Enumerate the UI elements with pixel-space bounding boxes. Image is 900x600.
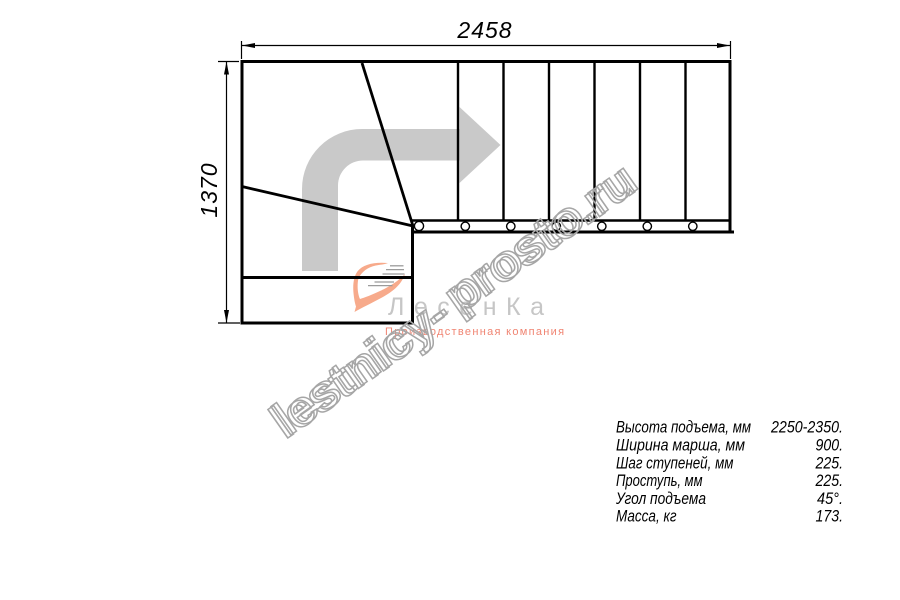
svg-text:225.: 225. [815, 471, 843, 490]
svg-text:Шаг ступеней, мм: Шаг ступеней, мм [616, 453, 734, 472]
svg-text:2250-2350.: 2250-2350. [770, 418, 843, 437]
svg-text:1370: 1370 [196, 162, 222, 217]
svg-text:Проступь, мм: Проступь, мм [616, 471, 703, 490]
svg-text:Угол подъема: Угол подъема [615, 489, 706, 508]
svg-text:225.: 225. [815, 453, 843, 472]
svg-text:2458: 2458 [456, 17, 512, 43]
svg-text:Высота подъема, мм: Высота подъема, мм [616, 418, 751, 437]
svg-text:45°.: 45°. [817, 489, 843, 508]
svg-text:900.: 900. [816, 436, 844, 455]
svg-text:Ширина марша, мм: Ширина марша, мм [616, 436, 745, 455]
svg-text:lestnicy-: lestnicy- [264, 286, 461, 446]
svg-text:173.: 173. [816, 507, 844, 526]
svg-text:Масса, кг: Масса, кг [616, 507, 677, 526]
